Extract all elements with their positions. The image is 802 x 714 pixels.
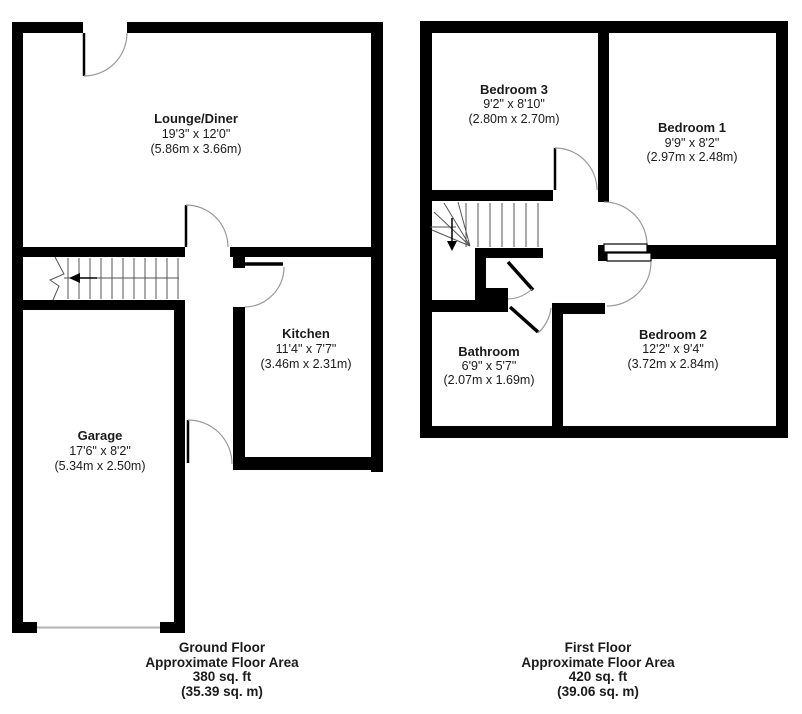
ff-staircase	[430, 202, 538, 251]
kitchen-door-swing-arc	[245, 267, 284, 307]
bedroom3-door-swing-arc	[555, 148, 597, 190]
cupboard-door-swing-arc	[508, 289, 532, 299]
bedroom1-door-leaf	[604, 244, 647, 252]
caption-subtitle: Approximate Floor Area	[521, 655, 675, 670]
gf-garage-right-wall	[174, 300, 185, 633]
first-floor-plan: Bedroom 3 9'2" x 8'10" (2.80m x 2.70m) B…	[420, 21, 788, 699]
gf-top-wall-right	[127, 22, 383, 33]
room-dim-metric: (3.46m x 2.31m)	[260, 357, 351, 371]
ff-stair-treads	[466, 203, 538, 247]
ff-under-stairs-wall	[477, 248, 543, 258]
room-dim-imperial: 9'2" x 8'10"	[483, 97, 545, 111]
room-label-bedroom3: Bedroom 3 9'2" x 8'10" (2.80m x 2.70m)	[468, 82, 559, 126]
ff-top-wall	[420, 21, 788, 33]
room-dim-metric: (5.86m x 3.66m)	[150, 142, 241, 156]
ff-bed3-bottom-wall	[432, 190, 553, 201]
caption-area-ft: 380 sq. ft	[193, 669, 252, 684]
caption-area-ft: 420 sq. ft	[569, 669, 628, 684]
gf-lounge-bottom-wall-left	[12, 247, 185, 257]
gf-kitchen-bottom-wall	[233, 457, 383, 470]
room-label-garage: Garage 17'6" x 8'2" (5.34m x 2.50m)	[54, 428, 145, 473]
ff-bed3-bed1-divider	[598, 33, 609, 202]
room-dim-metric: (5.34m x 2.50m)	[54, 459, 145, 473]
room-name: Kitchen	[282, 326, 330, 341]
caption-area-m: (39.06 sq. m)	[557, 684, 639, 699]
room-name: Lounge/Diner	[154, 111, 238, 126]
gf-stairs-bottom-wall	[12, 300, 180, 310]
caption-title: Ground Floor	[179, 640, 266, 655]
gf-left-wall	[12, 22, 23, 633]
bedroom2-door-leaf	[607, 253, 651, 261]
first-floor-caption: First Floor Approximate Floor Area 420 s…	[521, 640, 675, 699]
bedroom1-door-swing-arc	[604, 202, 647, 245]
ff-bathroom-bed2-divider	[552, 303, 563, 427]
ff-right-wall	[776, 21, 788, 438]
lounge-door-swing-arc	[186, 205, 228, 247]
room-name: Bedroom 3	[480, 82, 548, 97]
room-name: Bathroom	[458, 344, 519, 359]
room-dim-imperial: 9'9" x 8'2"	[665, 136, 720, 150]
room-label-bathroom: Bathroom 6'9" x 5'7" (2.07m x 1.69m)	[443, 344, 534, 387]
back-door-swing-arc	[188, 420, 232, 464]
gf-garage-bottom-right-pier	[160, 622, 185, 633]
room-dim-metric: (3.72m x 2.84m)	[627, 357, 718, 371]
ff-bed1-bed2-divider	[647, 245, 788, 259]
floor-plan-canvas: Lounge/Diner 19'3" x 12'0" (5.86m x 3.66…	[0, 0, 802, 714]
gf-stair-break-line	[50, 257, 64, 300]
caption-title: First Floor	[565, 640, 632, 655]
room-name: Garage	[78, 428, 123, 443]
room-dim-imperial: 12'2" x 9'4"	[642, 342, 704, 356]
ground-floor-plan: Lounge/Diner 19'3" x 12'0" (5.86m x 3.66…	[12, 22, 383, 699]
gf-kitchen-left-wall	[233, 307, 245, 470]
caption-area-m: (35.39 sq. m)	[181, 684, 263, 699]
floor-plan-page: Lounge/Diner 19'3" x 12'0" (5.86m x 3.66…	[0, 0, 802, 714]
gf-lounge-bottom-wall-right	[230, 247, 372, 257]
room-dim-metric: (2.07m x 1.69m)	[443, 373, 534, 387]
ground-floor-caption: Ground Floor Approximate Floor Area 380 …	[145, 640, 299, 699]
room-label-lounge-diner: Lounge/Diner 19'3" x 12'0" (5.86m x 3.66…	[150, 111, 241, 156]
room-label-kitchen: Kitchen 11'4" x 7'7" (3.46m x 2.31m)	[260, 326, 351, 371]
cupboard-door-leaf	[508, 262, 533, 290]
room-label-bedroom1: Bedroom 1 9'9" x 8'2" (2.97m x 2.48m)	[646, 120, 737, 164]
ff-bathroom-top-wall-left	[428, 300, 508, 312]
room-dim-metric: (2.97m x 2.48m)	[646, 150, 737, 164]
gf-staircase	[50, 257, 179, 300]
room-dim-imperial: 17'6" x 8'2"	[69, 444, 131, 458]
room-dim-imperial: 19'3" x 12'0"	[162, 127, 231, 141]
room-dim-imperial: 11'4" x 7'7"	[276, 342, 337, 356]
gf-kitchen-left-wall-stub	[233, 255, 245, 268]
room-name: Bedroom 2	[639, 327, 707, 342]
ff-bottom-wall	[420, 426, 788, 438]
room-dim-metric: (2.80m x 2.70m)	[468, 112, 559, 126]
bathroom-door-leaf	[510, 307, 538, 332]
caption-subtitle: Approximate Floor Area	[145, 655, 299, 670]
room-dim-imperial: 6'9" x 5'7"	[462, 359, 517, 373]
front-door-swing-arc	[84, 33, 127, 76]
bathroom-door-swing-arc	[538, 308, 551, 333]
room-name: Bedroom 1	[658, 120, 726, 135]
ff-left-wall	[420, 21, 432, 438]
gf-garage-bottom-left-pier	[12, 622, 37, 633]
stair-direction-arrow-left-icon	[69, 273, 80, 283]
gf-right-wall	[371, 22, 383, 472]
stair-direction-arrow-down-icon	[447, 241, 457, 251]
ff-cupboard-bottom-wall	[475, 288, 508, 300]
ff-stair-winders	[430, 202, 470, 246]
bedroom2-door-swing-arc	[607, 262, 651, 306]
room-label-bedroom2: Bedroom 2 12'2" x 9'4" (3.72m x 2.84m)	[627, 327, 718, 371]
gf-top-wall-left	[12, 22, 83, 33]
